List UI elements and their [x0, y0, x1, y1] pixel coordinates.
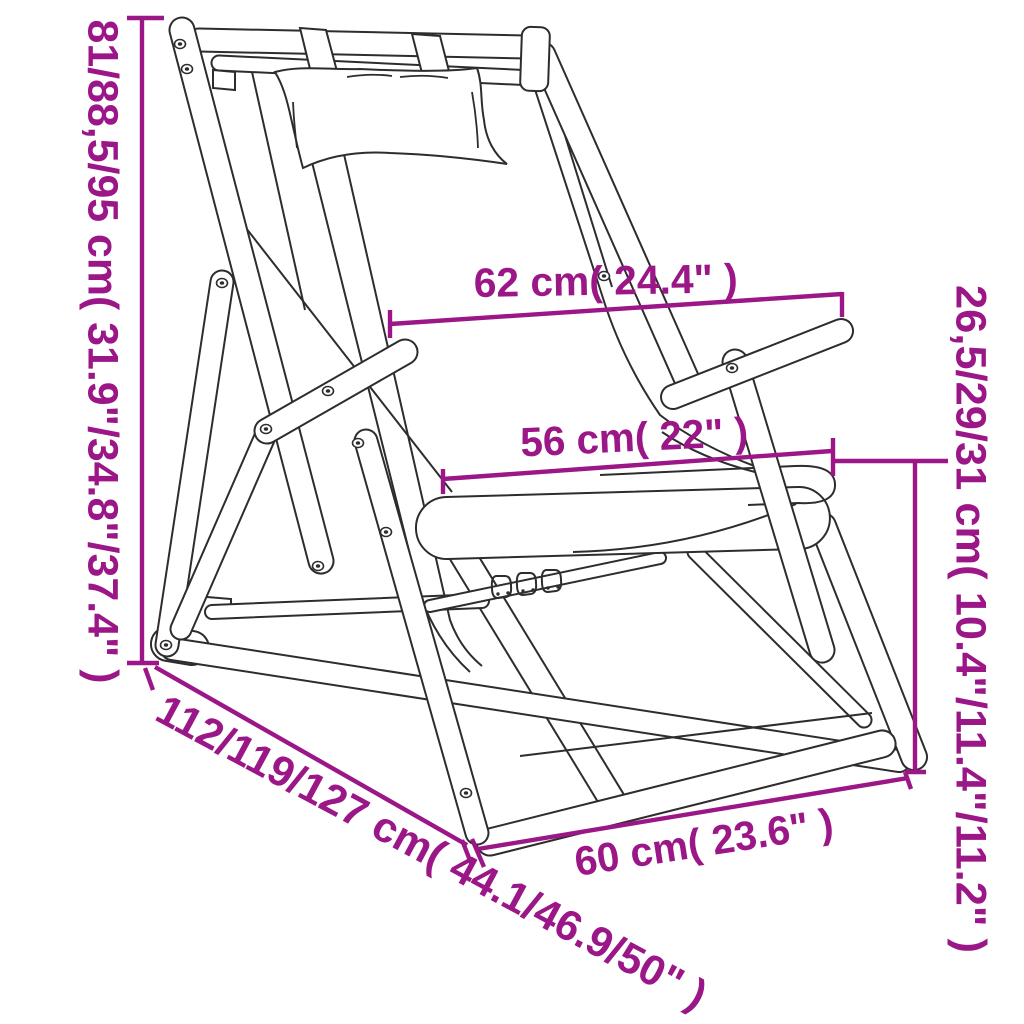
svg-text:81/88,5/95 cm( 31.9"/34.8"/37.: 81/88,5/95 cm( 31.9"/34.8"/37.4" ): [79, 20, 126, 684]
svg-text:62 cm( 24.4" ): 62 cm( 24.4" ): [473, 255, 738, 306]
svg-text:26,5/29/31 cm( 10.4"/11.4"/11.: 26,5/29/31 cm( 10.4"/11.4"/11.2" ): [947, 285, 995, 953]
